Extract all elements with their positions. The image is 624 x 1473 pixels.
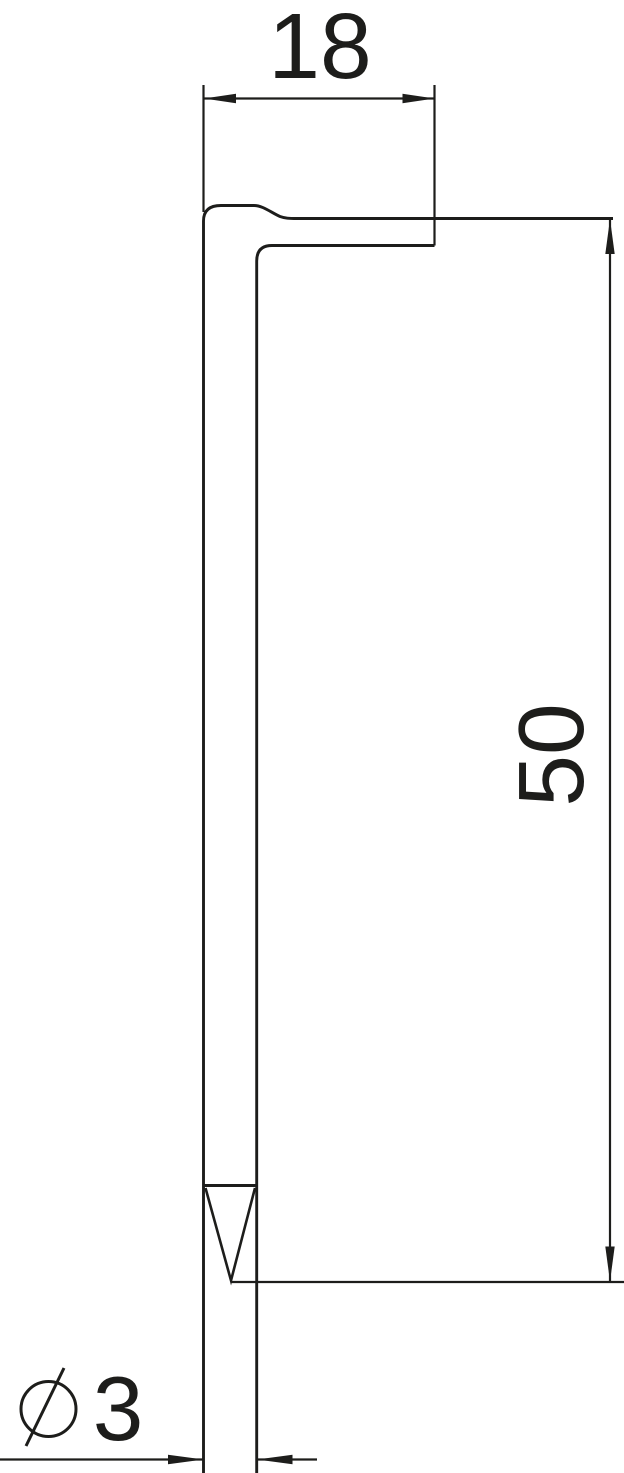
dim-width-value: 18 (268, 0, 371, 98)
dim-height: 50 (231, 219, 624, 1282)
part-inner-contour (257, 246, 435, 1473)
technical-drawing-canvas: 18 50 3 (0, 0, 624, 1473)
dim-width: 18 (204, 0, 435, 246)
dim-height-arrow-bottom-icon (605, 1247, 614, 1282)
dim-diameter-arrow-left-icon (168, 1455, 204, 1464)
dim-height-arrow-top-icon (605, 219, 614, 254)
dim-diameter-arrow-right-icon (257, 1455, 293, 1464)
dim-width-arrow-left-icon (204, 94, 236, 103)
diameter-symbol-circle (21, 1382, 76, 1437)
dim-width-arrow-right-icon (403, 94, 435, 103)
tip-bevel (206, 1188, 256, 1281)
diameter-symbol-icon (21, 1368, 76, 1446)
dim-diameter: 3 (0, 1359, 317, 1464)
dim-height-value: 50 (499, 703, 603, 806)
dimension-drawing-svg: 18 50 3 (0, 0, 624, 1473)
dim-diameter-value: 3 (93, 1359, 144, 1460)
